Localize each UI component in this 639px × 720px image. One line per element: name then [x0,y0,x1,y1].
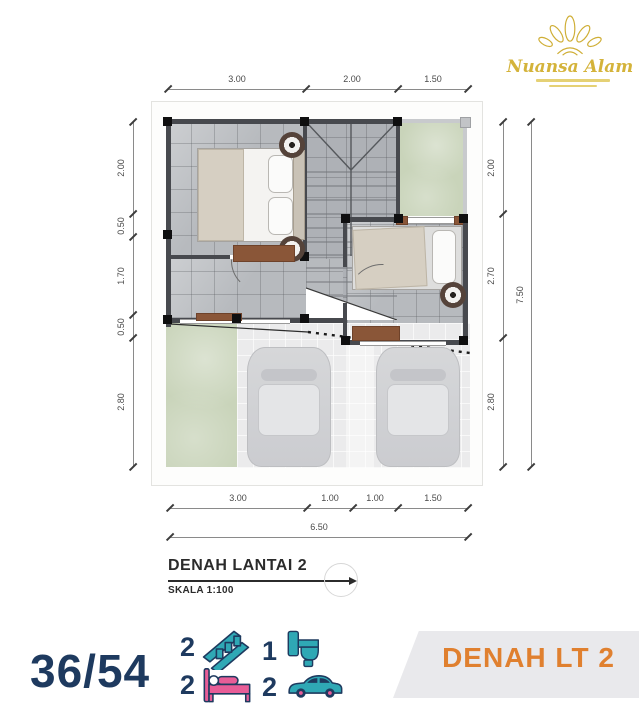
car-count: 2 [262,672,277,703]
dim-label: 2.80 [116,393,126,411]
dim-line-bottom [170,508,468,509]
dim-label: 0.50 [116,217,126,235]
dim-label: 2.70 [486,267,496,285]
desk [352,326,400,341]
car-icon [286,672,344,700]
plan-title: DENAH LANTAI 2 [168,557,307,575]
dim-label: 3.00 [229,493,247,503]
dim-label: 2.00 [486,159,496,177]
column [393,117,402,126]
column [300,117,309,126]
dim-tick [527,463,535,471]
side-table [440,282,466,308]
dim-label: 3.00 [228,74,246,84]
dim-label: 0.50 [116,318,126,336]
dim-line-top [168,89,468,90]
bed-headboard [293,150,305,240]
bed-icon [202,666,252,706]
dim-label: 7.50 [515,286,525,304]
dim-label: 2.00 [343,74,361,84]
column [163,315,172,324]
column [460,117,471,128]
dim-label: 6.50 [310,522,328,532]
dim-tick [464,533,472,541]
dim-label: 1.50 [424,74,442,84]
column [394,214,403,223]
logo-name: Nuansa Alam [500,57,639,77]
balcony-edge-right [463,121,467,218]
dim-label: 1.70 [116,267,126,285]
column [341,336,350,345]
bed-pillow [268,155,293,193]
window-balcony [404,217,456,224]
column [459,214,468,223]
dim-line-right [503,122,504,467]
column [232,314,241,323]
toilet-count: 1 [262,636,277,667]
dim-label: 2.00 [116,159,126,177]
toilet-icon [284,630,324,670]
dim-label: 1.00 [366,493,384,503]
logo-tagline-line [536,79,610,82]
dim-tick [499,463,507,471]
balcony-edge-top [402,119,468,123]
dim-label: 2.80 [486,393,496,411]
wall-bedroom2-left-upper [343,217,347,267]
stairs-count: 2 [180,632,195,663]
column [163,230,172,239]
title-circle [324,563,358,597]
bed-count: 2 [180,670,195,701]
dim-line-right-total [531,122,532,467]
dim-tick [464,504,472,512]
wall-stair-balcony [396,122,400,220]
house-type-label: 36/54 [30,644,150,698]
lotus-logo-icon [533,12,607,60]
car-topview [376,347,460,467]
logo-tagline-line [549,85,597,87]
nightstand [279,132,305,158]
dim-label: 1.00 [321,493,339,503]
bed-pillow [268,197,293,235]
dim-label: 1.50 [424,493,442,503]
stairs-icon [202,628,250,670]
plan-scale: SKALA 1:100 [168,585,234,596]
wall-left [166,119,171,327]
bed-blanket [198,149,244,241]
banner-label: DENAH LT 2 [418,642,639,674]
balcony-garden [400,122,466,216]
column [300,314,309,323]
bed-pillow [432,230,456,284]
dim-tick [464,85,472,93]
dim-tick [129,463,137,471]
dim-line-left [133,122,134,467]
column [459,336,468,345]
wall-bedroom2-right [463,217,468,345]
window-bedroom2 [360,341,446,346]
car-topview [247,347,331,467]
wall-top [166,119,402,124]
column [163,117,172,126]
flyer-page: Nuansa Alam [0,0,639,720]
column [341,214,350,223]
dim-line-bottom-total [170,537,468,538]
